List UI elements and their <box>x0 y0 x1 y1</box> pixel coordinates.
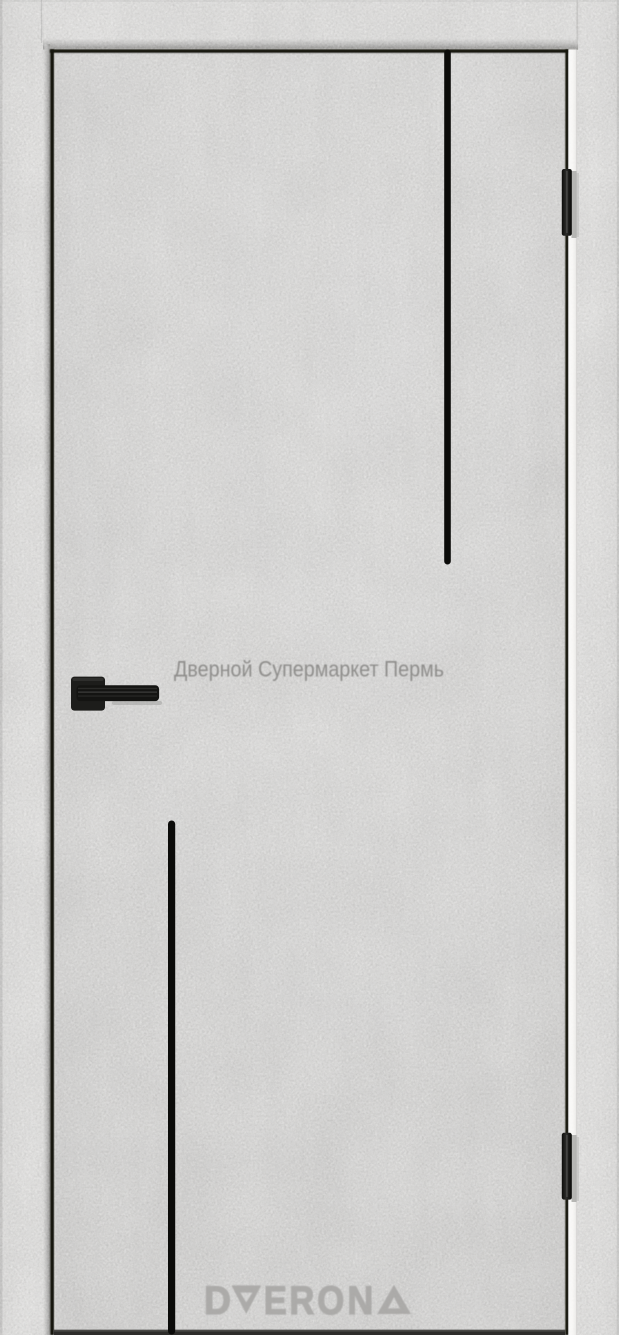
svg-text:N: N <box>347 1279 373 1323</box>
svg-text:R: R <box>289 1279 314 1323</box>
svg-text:D: D <box>204 1279 231 1323</box>
svg-text:E: E <box>264 1279 287 1323</box>
svg-text:O: O <box>317 1279 344 1323</box>
svg-text:Дверной Супермаркет Пермь: Дверной Супермаркет Пермь <box>174 657 444 682</box>
